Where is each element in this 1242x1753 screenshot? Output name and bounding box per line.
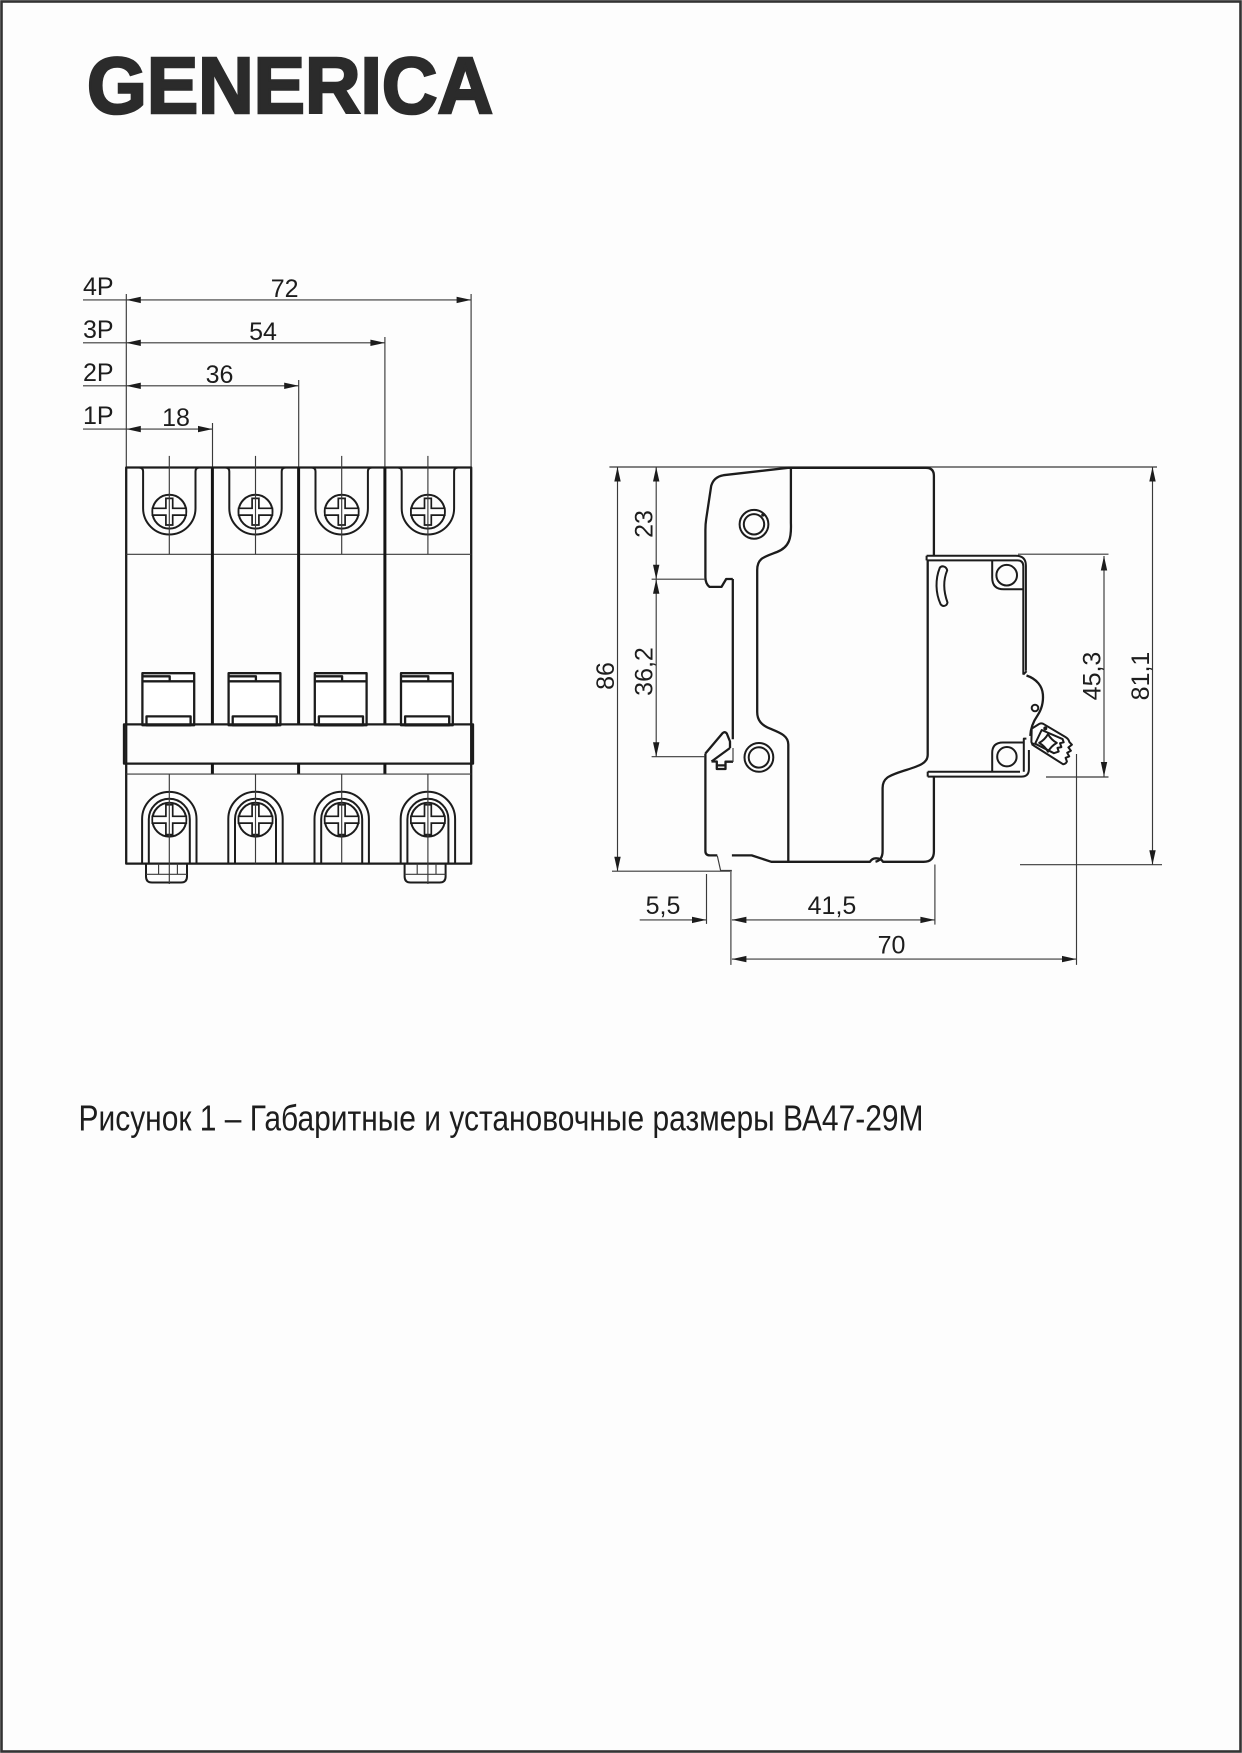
svg-text:54: 54 bbox=[249, 318, 277, 346]
svg-text:70: 70 bbox=[878, 932, 906, 960]
svg-text:18: 18 bbox=[162, 404, 190, 432]
svg-text:1P: 1P bbox=[83, 402, 114, 430]
svg-text:41,5: 41,5 bbox=[808, 892, 857, 920]
svg-text:3P: 3P bbox=[83, 316, 114, 344]
svg-text:72: 72 bbox=[271, 275, 299, 303]
svg-text:36,2: 36,2 bbox=[631, 647, 659, 696]
svg-text:81,1: 81,1 bbox=[1127, 652, 1155, 701]
svg-text:5,5: 5,5 bbox=[646, 892, 681, 920]
svg-text:2P: 2P bbox=[83, 359, 114, 387]
svg-text:Рисунок 1 – Габаритные и устан: Рисунок 1 – Габаритные и установочные ра… bbox=[79, 1098, 924, 1139]
svg-text:86: 86 bbox=[592, 662, 620, 690]
svg-text:4P: 4P bbox=[83, 273, 114, 301]
svg-text:36: 36 bbox=[206, 361, 234, 389]
svg-text:45,3: 45,3 bbox=[1078, 652, 1106, 701]
svg-text:23: 23 bbox=[631, 510, 659, 538]
svg-text:GENERICA: GENERICA bbox=[87, 41, 493, 130]
